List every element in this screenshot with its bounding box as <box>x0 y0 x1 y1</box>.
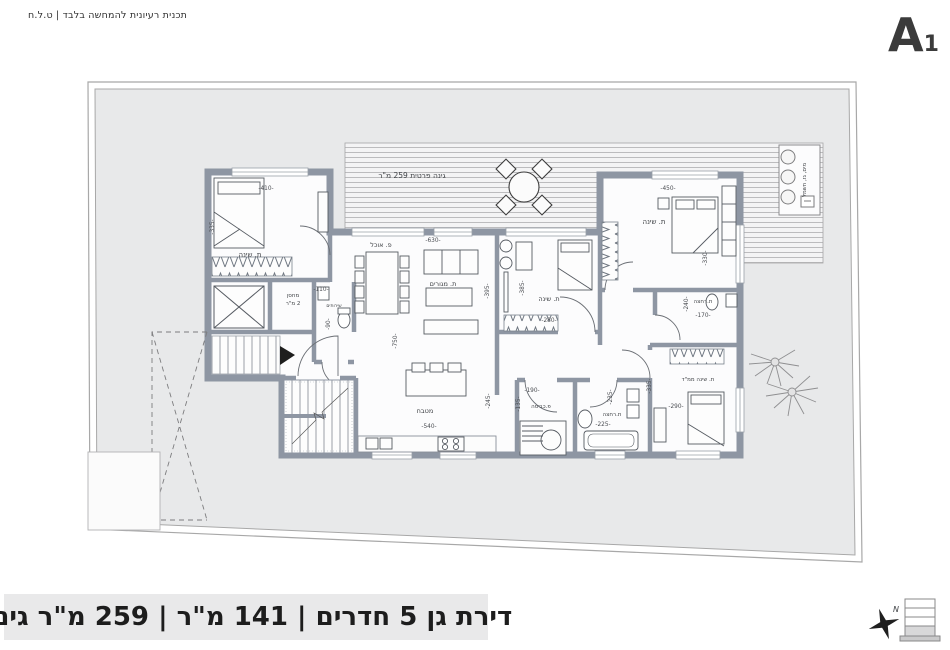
desk-icon <box>516 242 532 270</box>
desk-icon <box>318 192 328 232</box>
dimension-label: -450- <box>660 186 675 192</box>
window-icon <box>676 451 720 459</box>
nightstand-icon <box>658 198 669 209</box>
floor-plan-drawing: מים, גז, חשמל גינה פרטית 259 מ"ר <box>0 0 950 650</box>
room-label: ת.רחצה <box>694 299 713 305</box>
boiler-icon <box>500 240 512 252</box>
sink-icon <box>366 438 378 449</box>
dimension-label: -330- <box>703 250 709 265</box>
island-icon <box>406 370 466 396</box>
window-icon <box>352 228 424 236</box>
tv-icon <box>504 272 508 312</box>
pillow-icon <box>218 182 260 194</box>
dimension-label: -410- <box>258 186 273 192</box>
sofa-icon <box>424 250 478 274</box>
pillow-icon <box>676 200 694 209</box>
window-icon <box>736 388 744 432</box>
utilities-cabinet: מים, גז, חשמל <box>779 145 820 215</box>
window-icon <box>736 225 744 283</box>
sofa-icon <box>424 320 478 334</box>
plan-title-bar: דירת גן 5 חדרים | 141 מ"ר | 259 מ"ר גינה <box>4 594 488 640</box>
dimension-label: -170- <box>695 313 710 319</box>
dimension-label: -90- <box>326 318 332 330</box>
dimension-label: -225- <box>595 422 610 428</box>
room-label: שירותים <box>326 304 342 309</box>
room-label: פ.כביסה <box>531 404 551 410</box>
floor-plan-sheet: תכנית רעיונית להמחשה בלבד | ט.ל.ח A1 <box>0 0 950 650</box>
pillow-icon <box>697 200 715 209</box>
room-label: ת.רחצה <box>603 412 622 418</box>
dimension-label: -540- <box>421 424 436 430</box>
dimension-label: -335- <box>210 219 216 234</box>
room-label: ת. שינה <box>538 295 559 303</box>
stool-icon <box>430 363 443 372</box>
closet-icon <box>212 257 292 276</box>
stairwell <box>284 380 354 453</box>
meter-icon <box>781 170 795 184</box>
dimension-label: -290- <box>668 404 683 410</box>
garden-area-label: גינה פרטית 259 מ"ר <box>378 171 445 180</box>
meter-icon <box>781 190 795 204</box>
meter-icon <box>781 150 795 164</box>
dining-set-icon <box>355 252 409 314</box>
closet-icon <box>670 349 724 364</box>
elevator-icon <box>214 286 264 328</box>
room-label: ת. שינה <box>643 218 666 226</box>
window-icon <box>595 451 625 459</box>
dimension-label: -235- <box>608 389 614 404</box>
window-icon <box>434 228 472 236</box>
room-label: מטבח <box>417 407 434 415</box>
window-icon <box>232 168 308 176</box>
dimension-label: -750- <box>393 333 399 348</box>
dimension-label: -135- <box>516 396 522 411</box>
dimension-label: -335- <box>647 378 653 393</box>
closet-icon <box>602 222 618 280</box>
floor-locator-icon <box>900 599 940 641</box>
dimension-label: -385- <box>520 280 526 295</box>
stool-icon <box>412 363 425 372</box>
counter-icon <box>358 436 496 452</box>
stove-icon <box>438 437 464 451</box>
coffee-table-icon <box>426 288 472 306</box>
room-label: פ. אוכל <box>370 241 391 249</box>
wardrobe-icon <box>722 186 736 256</box>
room-label: ת. שינה <box>239 251 262 259</box>
sink-icon <box>726 294 737 307</box>
plan-title: דירת גן 5 חדרים | 141 מ"ר | 259 מ"ר גינה <box>0 602 512 632</box>
pillow-icon <box>561 243 589 252</box>
pillow-icon <box>691 395 721 404</box>
sink-icon <box>380 438 392 449</box>
sink-icon <box>627 405 639 418</box>
window-icon <box>652 171 718 179</box>
stool-icon <box>448 363 461 372</box>
adjacent-plot-notch <box>88 452 160 530</box>
dimension-label: -280- <box>541 318 556 324</box>
dimension-label: -630- <box>425 238 440 244</box>
boiler-icon <box>500 257 512 269</box>
dimension-label: -190- <box>524 388 539 394</box>
toilet-icon <box>578 410 592 428</box>
utilities-label: מים, גז, חשמל <box>801 163 808 197</box>
sink-icon <box>627 389 639 402</box>
dimension-label: -110- <box>313 287 328 293</box>
room-label: מחסן <box>287 293 300 299</box>
room-label: ת. שינה ממ"ד <box>682 377 715 383</box>
dimension-label: -240- <box>684 296 690 311</box>
window-icon <box>506 228 586 236</box>
room-label: 2 מ"ר <box>286 301 301 307</box>
dimension-label: -245- <box>486 393 492 408</box>
north-label: N <box>893 605 899 614</box>
room-label: ת. מגורים <box>430 280 457 288</box>
dimension-label: -395- <box>485 283 491 298</box>
dresser-icon <box>654 408 666 442</box>
laundry-fixtures <box>520 421 566 455</box>
